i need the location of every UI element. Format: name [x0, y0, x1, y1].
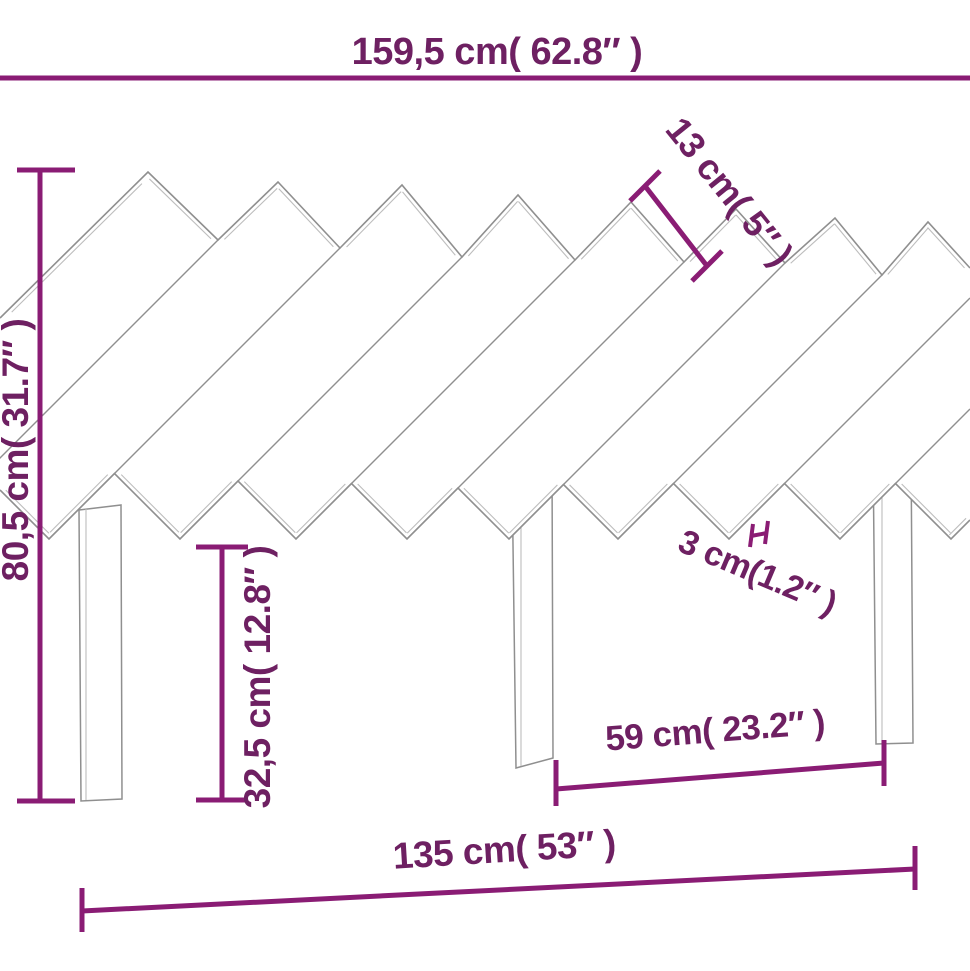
- slat-gap-label: 3 cm(1.2″ ): [673, 522, 842, 622]
- headboard-slats: [0, 172, 970, 615]
- base-width-label: 135 cm( 53″ ): [392, 822, 617, 877]
- dim-leg-height: 32,5 cm( 12.8″ ): [196, 546, 278, 809]
- headboard-dimension-diagram: 159,5 cm( 62.8″ ) 80,5 cm( 31.7″ ) 13 cm…: [0, 0, 970, 971]
- leg-height-label: 32,5 cm( 12.8″ ): [237, 546, 278, 809]
- leg-spacing-dim-line: [556, 763, 884, 789]
- dim-slat-gap: 3 cm(1.2″ ): [673, 521, 842, 623]
- dim-base-width: 135 cm( 53″ ): [82, 822, 915, 932]
- base-width-dim-line: [82, 869, 915, 911]
- leg-spacing-label: 59 cm( 23.2″ ): [604, 702, 826, 758]
- overall-height-label: 80,5 cm( 31.7″ ): [0, 319, 36, 582]
- left-leg: [79, 505, 122, 801]
- dim-overall-width: 159,5 cm( 62.8″ ): [0, 31, 970, 78]
- diagram-canvas: 159,5 cm( 62.8″ ) 80,5 cm( 31.7″ ) 13 cm…: [0, 0, 970, 971]
- dim-leg-spacing: 59 cm( 23.2″ ): [556, 702, 884, 806]
- overall-width-label: 159,5 cm( 62.8″ ): [352, 31, 643, 73]
